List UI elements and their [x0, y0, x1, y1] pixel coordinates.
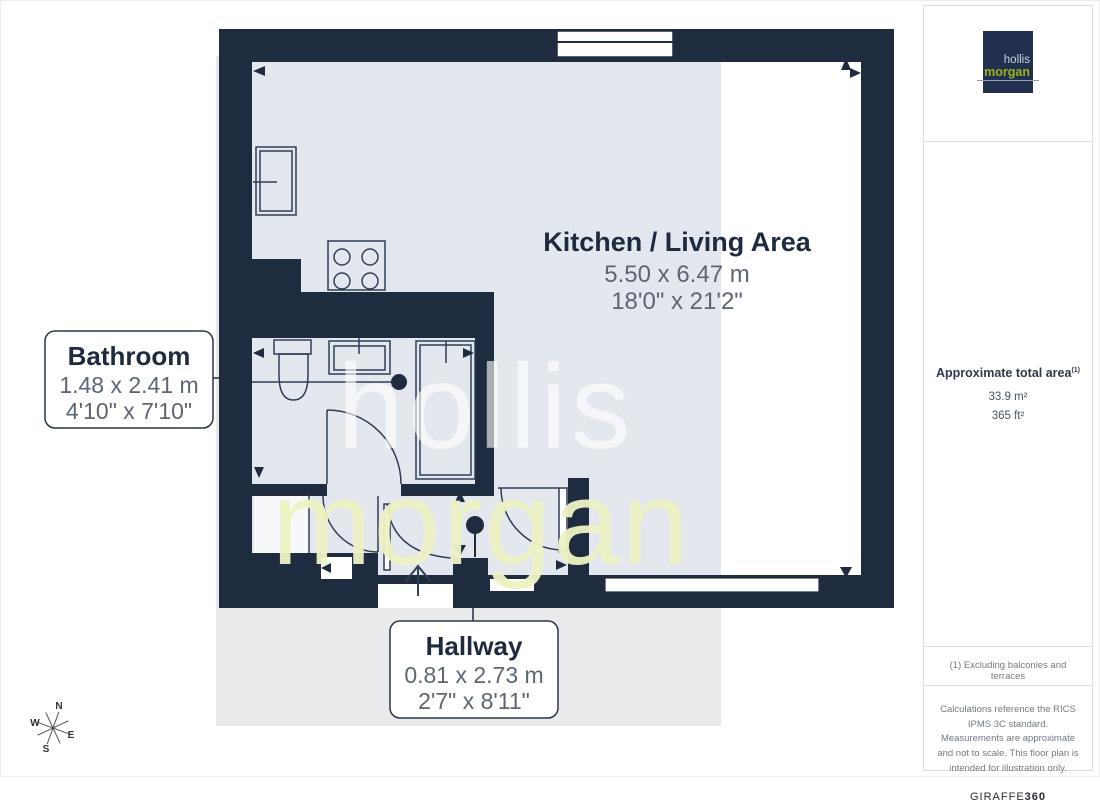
svg-text:Kitchen / Living Area: Kitchen / Living Area [543, 227, 812, 257]
area-summary-section: Approximate total area(1) 33.9 m² 365 ft… [924, 142, 1092, 647]
svg-text:Hallway: Hallway [426, 631, 523, 661]
footnote-text: (1) Excluding balconies and terraces [950, 660, 1067, 682]
footnote-marker: (1) [1071, 367, 1080, 374]
stove-symbol [328, 241, 385, 290]
svg-text:2'7" x 8'11": 2'7" x 8'11" [418, 688, 530, 714]
compass-e: E [68, 730, 75, 741]
logo-underline [977, 80, 1039, 82]
wall-right [861, 62, 894, 608]
wall-kitchen-jog [252, 259, 301, 292]
watermark-line2: morgan [272, 456, 691, 590]
brand-name: GIRAFFE [970, 791, 1025, 803]
svg-text:Bathroom: Bathroom [68, 341, 191, 371]
hollis-morgan-logo: hollis morgan [983, 31, 1033, 93]
wall-bathroom-north [252, 292, 494, 338]
logo-section: hollis morgan [924, 31, 1092, 142]
info-sidebar: hollis morgan Approximate total area(1) … [923, 5, 1093, 771]
footnote-section: (1) Excluding balconies and terraces [924, 647, 1092, 686]
floorplan-page: { "floor_plan": { "rooms": { "kitchen_li… [0, 0, 1100, 777]
disclaimer-section: Calculations reference the RICS IPMS 3C … [924, 686, 1092, 803]
svg-text:0.81 x 2.73 m: 0.81 x 2.73 m [404, 662, 543, 688]
svg-text:5.50 x 6.47 m: 5.50 x 6.47 m [604, 261, 749, 288]
compass-s: S [43, 744, 50, 755]
window-top [557, 31, 673, 57]
svg-text:4'10" x 7'10": 4'10" x 7'10" [66, 398, 192, 424]
compass-icon: N E S W [30, 701, 74, 755]
watermark-line1: hollis [337, 340, 634, 474]
compass-w: W [30, 718, 40, 729]
compass-n: N [55, 701, 62, 712]
disclaimer-text: Calculations reference the RICS IPMS 3C … [936, 703, 1080, 777]
area-metric: 33.9 m² [924, 391, 1092, 403]
area-imperial: 365 ft² [924, 410, 1092, 422]
area-title: Approximate total area(1) [924, 366, 1092, 380]
svg-text:1.48 x 2.41 m: 1.48 x 2.41 m [59, 372, 198, 398]
brand-suffix: 360 [1025, 791, 1046, 803]
logo-text-morgan: morgan [983, 66, 1030, 79]
giraffe360-brand: GIRAFFE360 [936, 791, 1080, 803]
svg-text:18'0" x 21'2": 18'0" x 21'2" [611, 288, 743, 315]
wall-left [219, 62, 252, 608]
